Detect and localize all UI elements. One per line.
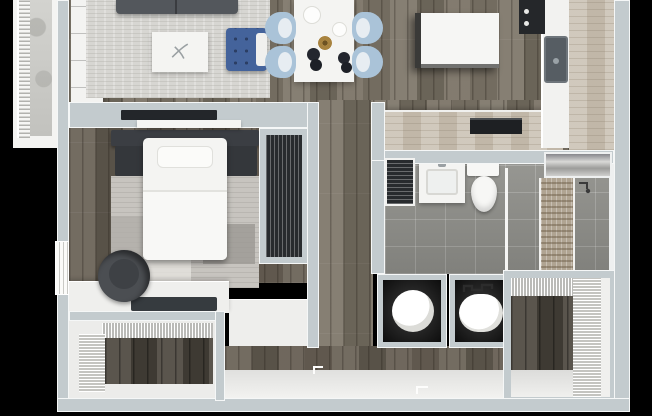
dining-chair-seat	[356, 18, 370, 38]
table-decor-twig	[167, 39, 193, 65]
utility-louver-door	[385, 158, 415, 206]
dining-chair-seat	[278, 18, 292, 38]
coffee-table	[152, 32, 208, 72]
wire-shelf-side	[573, 278, 601, 397]
dishwasher-front	[470, 118, 522, 134]
entry-floor-slab	[225, 370, 507, 398]
dining-chair	[265, 12, 296, 44]
range	[519, 0, 545, 34]
kitchen-counter-wood-top	[569, 0, 614, 150]
balcony-edge	[27, 138, 49, 148]
washer	[392, 290, 434, 332]
tv-shelf	[137, 120, 241, 128]
wall-bathroom-left	[371, 160, 385, 274]
wire-shelf-top	[511, 278, 575, 298]
entry-door-mark	[313, 366, 323, 374]
wire-shelf-side	[79, 334, 105, 392]
desk-chair	[98, 250, 150, 302]
closet-left-floor	[105, 338, 213, 384]
vanity-basin	[426, 169, 458, 195]
sofa-cushion-seam	[175, 0, 177, 14]
entry-door-handle	[416, 386, 428, 394]
wall-closet-left-top	[69, 311, 225, 321]
range-knob	[524, 21, 529, 26]
wall-closet-left-right	[215, 311, 225, 401]
wall-ledge-corner	[229, 299, 309, 346]
wall-exterior-right	[614, 0, 630, 412]
range-knob	[524, 9, 529, 14]
wall-hallway-kitchen	[371, 102, 385, 164]
bath-vanity	[419, 161, 465, 203]
bedroom-closet-shelves	[266, 135, 302, 257]
sink-faucet	[553, 58, 559, 64]
bed-duvet	[143, 190, 227, 260]
closet-right-floor	[511, 296, 573, 372]
sofa	[116, 0, 238, 14]
place-setting-plate	[303, 6, 321, 24]
balcony-railing	[17, 0, 30, 138]
metal-shelf	[544, 152, 612, 178]
place-setting-plate	[332, 22, 347, 37]
walk-in-closet-left	[69, 321, 215, 398]
shower-glass-panel	[505, 168, 508, 274]
kitchen-island	[415, 13, 499, 68]
dryer-closet-interior	[455, 280, 507, 342]
closet-right-interior	[511, 278, 610, 397]
desk-mat	[131, 297, 217, 311]
bedroom-closet	[259, 128, 309, 264]
bed-pillow	[157, 146, 213, 168]
dining-chair	[265, 46, 296, 78]
shower-tile-wall	[539, 178, 575, 274]
shower-head	[577, 181, 593, 195]
washer-closet-interior	[383, 280, 441, 342]
kitchen-sink	[544, 36, 568, 83]
closet-right-floor-white	[511, 370, 573, 397]
dryer	[459, 294, 503, 332]
dining-chair	[352, 46, 383, 78]
napkin-dark	[341, 62, 352, 73]
tv	[121, 110, 217, 120]
closet-right-wall-strip	[601, 278, 610, 397]
bedroom-window	[55, 241, 69, 295]
dining-chair	[352, 12, 383, 44]
washer-closet	[377, 274, 447, 348]
dryer-hose	[462, 282, 500, 294]
dining-chair-seat	[278, 52, 292, 72]
entry-floor-wood	[225, 346, 507, 372]
wall-exterior-left	[57, 0, 69, 412]
dining-chair-seat	[356, 52, 370, 72]
wall-exterior-bottom	[57, 398, 630, 412]
walk-in-closet-right	[503, 270, 617, 404]
wall-hallway-left	[307, 102, 319, 348]
centerpiece-plant	[318, 36, 332, 50]
napkin-dark	[310, 59, 322, 71]
balcony-floor	[30, 0, 52, 136]
bed	[143, 138, 227, 260]
floorplan-render	[0, 0, 652, 416]
desk-chair-seat	[109, 259, 139, 289]
toilet-tank	[467, 162, 499, 176]
